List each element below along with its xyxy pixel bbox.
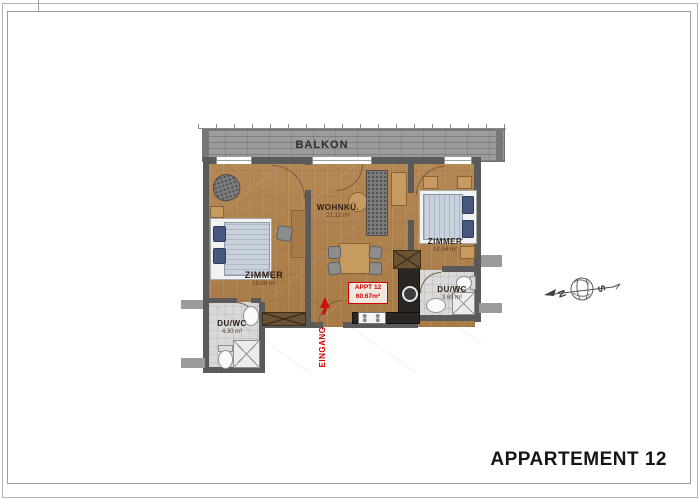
stove (358, 312, 386, 324)
bed-right-mattress (423, 194, 463, 240)
shower (233, 340, 260, 368)
room-label-bath-right: DU/WC 3.69 m² (430, 286, 474, 301)
room-name: WOHNKÜ. (312, 204, 364, 213)
apartment-badge-area: 60.67m² (349, 292, 387, 301)
pillow (213, 248, 226, 264)
room-label-zimmer-left: ZIMMER 18.09 m² (236, 271, 292, 287)
dining-chair (328, 246, 341, 259)
dining-chair (369, 262, 382, 275)
room-area: 18.09 m² (236, 281, 292, 288)
window (312, 157, 372, 164)
desk (291, 210, 306, 258)
room-name: ZIMMER (236, 271, 292, 281)
room-name: DU/WC (430, 286, 474, 295)
pillow (462, 196, 474, 214)
compass-south-label: S (594, 284, 607, 294)
nightstand (210, 206, 224, 218)
dining-chair (327, 261, 342, 276)
pillow (462, 220, 474, 238)
hall-wardrobe (262, 312, 306, 326)
dining-table (339, 243, 370, 274)
neighbor-wall-stub (181, 358, 205, 368)
nightstand (423, 176, 438, 189)
wall-west (203, 157, 209, 373)
compass-north-label: N (555, 289, 568, 300)
wall-bath-right-north (442, 266, 480, 272)
nightstand (457, 176, 472, 189)
apartment-badge-number: APPT 12 (349, 283, 387, 292)
sideboard (391, 172, 407, 206)
window (444, 157, 472, 164)
neighbor-wall-stub (481, 255, 502, 267)
room-label-wohnkueche: WOHNKÜ. 21.12 m² (312, 204, 364, 219)
window (216, 157, 252, 164)
room-name: ZIMMER (420, 238, 470, 247)
wall-bath-left-north (209, 298, 237, 303)
balcony-label: BALKON (202, 139, 442, 151)
wall-partition-left (305, 157, 311, 165)
neighbor-wall-stub (479, 303, 502, 313)
bed-left-mattress (224, 222, 270, 276)
room-area: 21.12 m² (312, 213, 364, 220)
floor-plan-sheet: BALKON (0, 0, 700, 500)
apartment-badge: APPT 12 60.67m² (348, 282, 388, 304)
entrance-label: EINGANG (318, 324, 328, 370)
compass-rose-icon: N S (543, 266, 623, 314)
room-area: 12.34 m² (420, 247, 470, 254)
desk-chair (276, 225, 293, 242)
room-label-bath-left: DU/WC 4.30 m² (210, 320, 254, 335)
room-name: DU/WC (210, 320, 254, 329)
wall-bath-left-north (251, 298, 261, 303)
sheet-title: APPARTEMENT 12 (490, 449, 667, 471)
toilet (218, 350, 233, 369)
wall-partition-right (408, 157, 414, 193)
neighbor-wall-stub (181, 300, 203, 309)
room-area: 3.69 m² (430, 295, 474, 302)
pillow (213, 226, 226, 242)
sheet-fold-mark (38, 0, 39, 11)
balcony-wall-right (496, 129, 503, 162)
kitchen-sink (402, 286, 418, 302)
dining-chair (368, 245, 383, 260)
wall-south-bath-right (414, 315, 480, 321)
sofa (366, 170, 388, 236)
room-area: 4.30 m² (210, 329, 254, 336)
compass-needle (544, 289, 556, 296)
wardrobe (393, 250, 421, 269)
room-label-zimmer-right: ZIMMER 12.34 m² (420, 238, 470, 253)
